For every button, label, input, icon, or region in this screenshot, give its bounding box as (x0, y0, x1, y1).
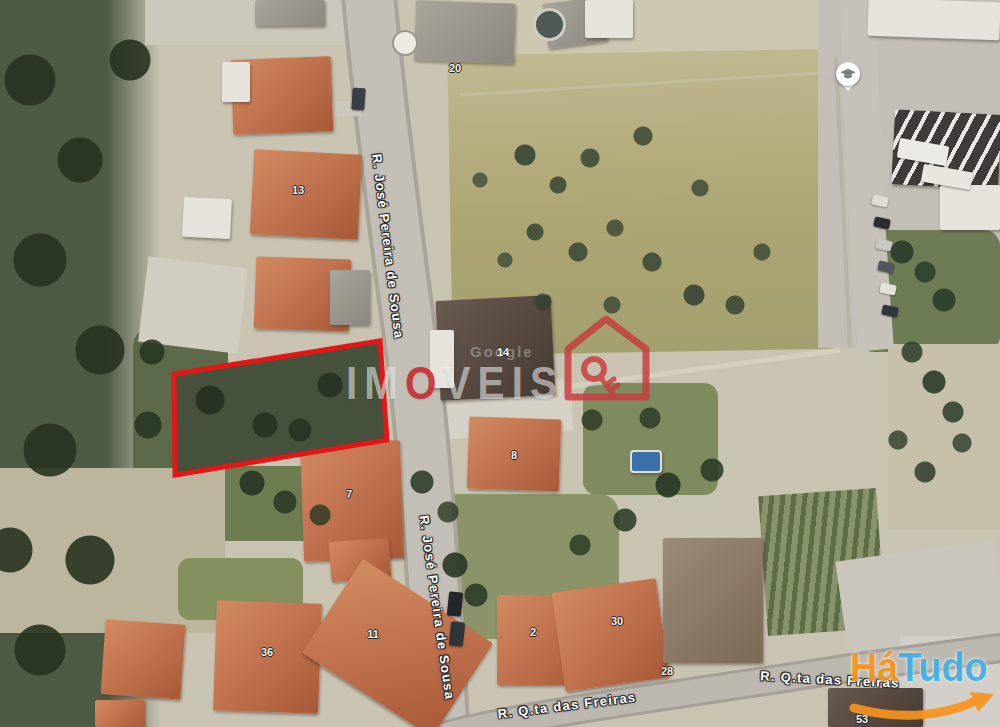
watermark-text: IM (346, 357, 405, 409)
logo-text-tudo: Tudo (898, 644, 987, 690)
watermark-text: VEIS (444, 357, 564, 409)
school-poi-marker (836, 62, 862, 88)
house-number-20: 20 (449, 62, 461, 74)
satellite-map: R. José Pereira de Sousa R. José Pereira… (0, 0, 1000, 727)
house-number-11: 11 (367, 628, 379, 640)
graduation-cap-icon (839, 65, 857, 83)
watermark-accent-letter: O (405, 357, 444, 409)
red-house-key-icon (556, 312, 656, 404)
house-number-7: 7 (346, 488, 352, 500)
house-number-13: 13 (292, 184, 304, 196)
house-number-28: 28 (661, 665, 673, 677)
logo-text-ha: Há (850, 644, 898, 690)
house-number-36: 36 (261, 646, 273, 658)
imoveis-watermark: IMOVEIS (346, 356, 564, 410)
logo-swoosh-arrow-icon (846, 690, 998, 726)
house-number-30: 30 (611, 615, 623, 627)
house-number-2: 2 (530, 626, 536, 638)
hatudo-logo: HáTudo (846, 642, 1000, 727)
house-number-8: 8 (511, 449, 517, 461)
